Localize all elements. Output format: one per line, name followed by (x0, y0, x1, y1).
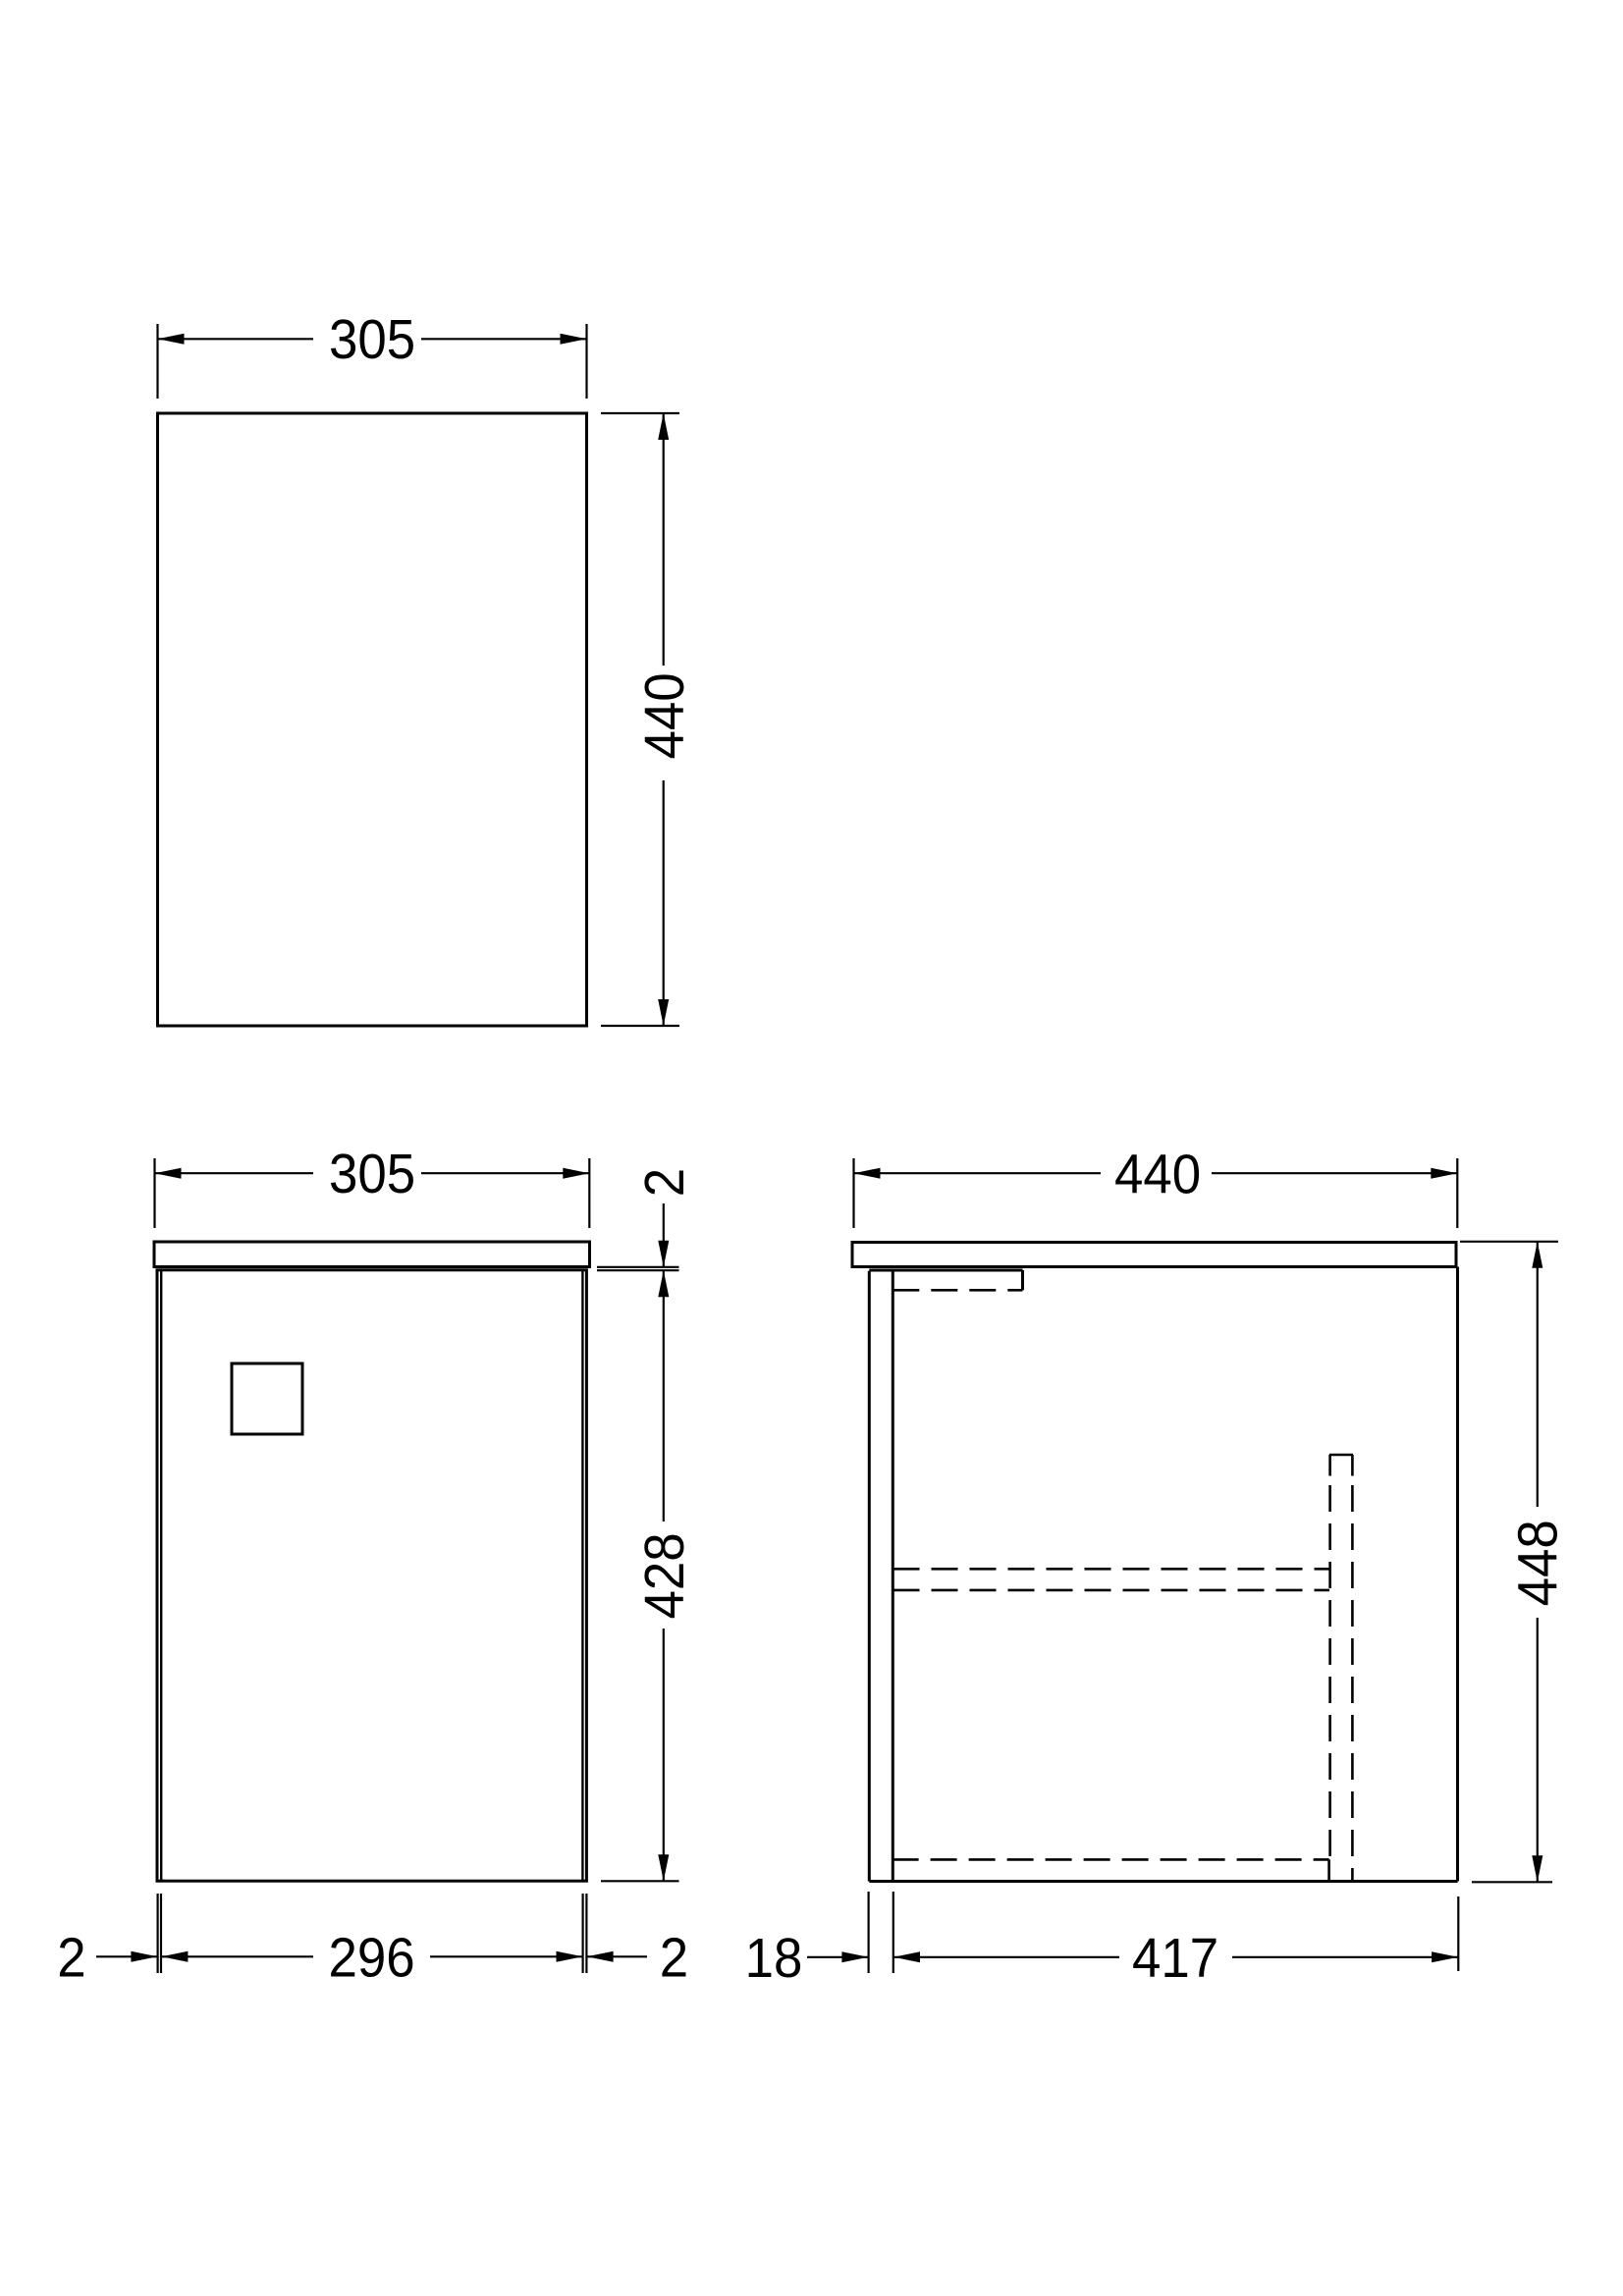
svg-text:2: 2 (632, 1168, 695, 1197)
svg-text:2: 2 (660, 1926, 688, 1989)
svg-text:440: 440 (632, 672, 695, 759)
svg-text:296: 296 (329, 1926, 415, 1989)
svg-text:448: 448 (1506, 1520, 1569, 1606)
svg-text:417: 417 (1132, 1926, 1218, 1989)
svg-text:2: 2 (57, 1926, 85, 1989)
svg-text:440: 440 (1114, 1143, 1201, 1205)
svg-text:18: 18 (745, 1926, 803, 1989)
svg-text:305: 305 (329, 307, 415, 370)
svg-text:428: 428 (632, 1532, 695, 1619)
svg-text:305: 305 (329, 1142, 415, 1204)
